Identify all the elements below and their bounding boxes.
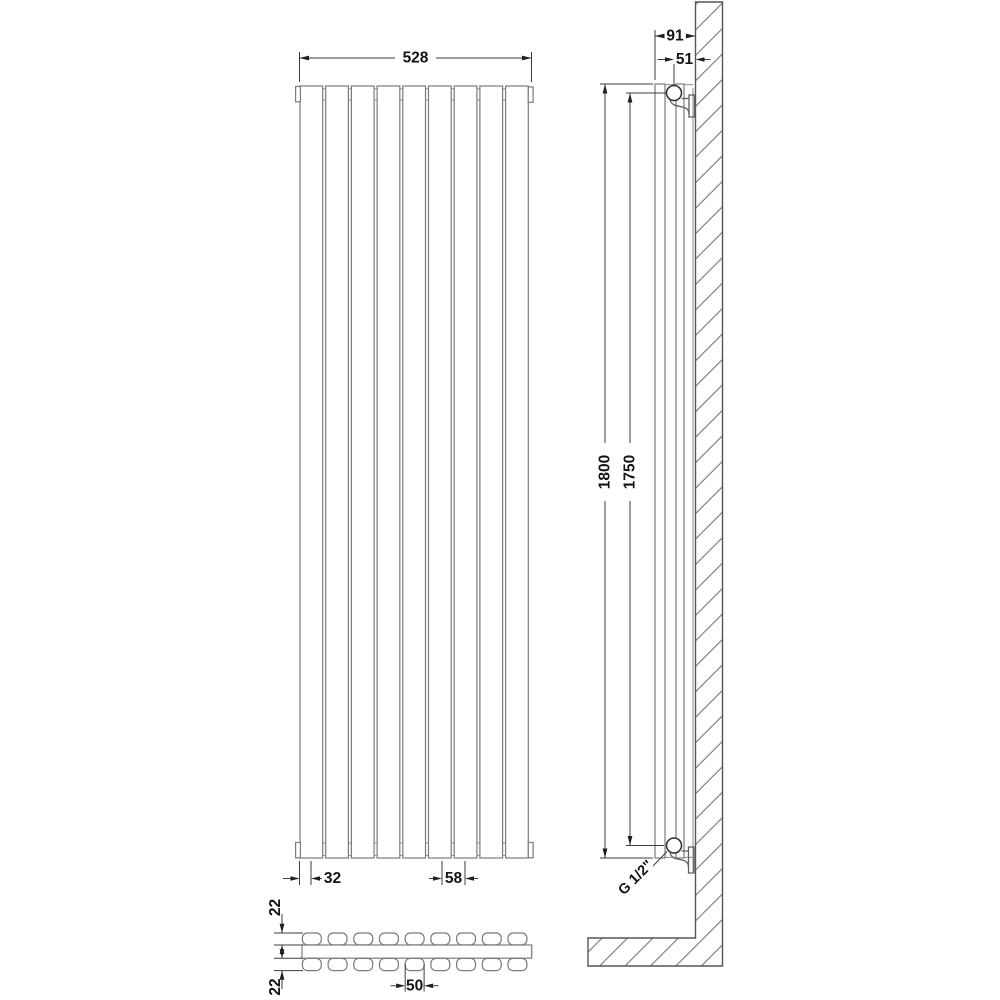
arrowhead bbox=[433, 876, 442, 881]
arrowhead bbox=[628, 836, 633, 846]
panel-section-front bbox=[405, 933, 424, 945]
front-panel-array bbox=[296, 86, 533, 858]
radiator-panel bbox=[300, 86, 323, 858]
overall-depth-label: 91 bbox=[666, 28, 684, 45]
panel-depth-front-label: 22 bbox=[267, 899, 284, 916]
end-tab bbox=[528, 87, 533, 102]
end-tab bbox=[528, 843, 533, 858]
pipe-connection-bottom bbox=[667, 838, 682, 853]
bracket-plate bbox=[689, 95, 695, 117]
panel-section-rear bbox=[302, 958, 321, 970]
radiator-technical-drawing: 528 32 58 bbox=[0, 0, 1000, 1000]
panel-section-rear bbox=[457, 958, 476, 970]
extension-lines bbox=[274, 933, 303, 971]
dimension-panel-width-front: 58 bbox=[429, 861, 478, 887]
edge-offset-label: 32 bbox=[324, 870, 341, 887]
panel-section-rear bbox=[380, 958, 399, 970]
arrowhead bbox=[603, 84, 608, 94]
arrowhead bbox=[665, 57, 674, 62]
arrowhead bbox=[628, 93, 633, 103]
panel-depth-rear-label: 22 bbox=[267, 978, 284, 995]
arrowhead bbox=[522, 56, 532, 61]
panel-section-front bbox=[482, 933, 501, 945]
radiator-panel bbox=[480, 86, 503, 858]
panel-section-front bbox=[457, 933, 476, 945]
arrowhead bbox=[424, 984, 433, 989]
connection-thread-label: G 1/2" bbox=[615, 857, 656, 898]
radiator-panel bbox=[377, 86, 400, 858]
panel-section-rear bbox=[405, 958, 424, 970]
dimension-edge-offset: 32 bbox=[283, 861, 341, 887]
radiator-panel bbox=[403, 86, 426, 858]
panel-section-front bbox=[380, 933, 399, 945]
overall-width-label: 528 bbox=[403, 50, 429, 67]
overall-height-label: 1800 bbox=[597, 455, 614, 489]
dimension-overall-width: 528 bbox=[300, 50, 532, 83]
plan-header-bar bbox=[302, 945, 532, 958]
arrowhead bbox=[300, 56, 310, 61]
panel-width-label: 58 bbox=[445, 870, 463, 887]
extension-lines bbox=[300, 861, 312, 885]
front-panel-section bbox=[655, 84, 665, 858]
plan-panel-width-label: 50 bbox=[406, 977, 423, 994]
arrowhead bbox=[465, 876, 474, 881]
panel-section-rear bbox=[482, 958, 501, 970]
drawing-canvas: 528 32 58 bbox=[0, 0, 1000, 1000]
panel-section-rear bbox=[431, 958, 450, 970]
arrowhead bbox=[603, 849, 608, 859]
pipe-centres-label: 1750 bbox=[622, 455, 639, 489]
arrowhead bbox=[655, 34, 665, 39]
radiator-panel bbox=[326, 86, 349, 858]
radiator-panel bbox=[506, 86, 529, 858]
plan-view: 22 22 50 bbox=[267, 899, 532, 996]
front-view: 528 32 58 bbox=[283, 50, 533, 888]
panel-section-rear bbox=[328, 958, 347, 970]
end-tab bbox=[296, 843, 301, 858]
arrowhead bbox=[396, 984, 405, 989]
radiator-panel bbox=[351, 86, 374, 858]
dimension-panel-depths: 22 22 bbox=[267, 899, 303, 996]
panel-section-front bbox=[328, 933, 347, 945]
arrowhead bbox=[311, 876, 320, 881]
arrowhead bbox=[686, 34, 696, 39]
pipe-to-wall-label: 51 bbox=[676, 51, 694, 68]
panel-section-front bbox=[354, 933, 373, 945]
end-tab bbox=[296, 87, 301, 102]
arrowhead bbox=[280, 924, 285, 933]
pipe-connection-top bbox=[667, 86, 682, 101]
radiator-panel bbox=[429, 86, 452, 858]
rear-panel-section bbox=[676, 84, 684, 858]
side-view: 91 51 1800 1750 bbox=[588, 2, 723, 966]
panel-section-front bbox=[508, 933, 527, 945]
panel-section-rear bbox=[508, 958, 527, 970]
panel-section-front bbox=[302, 933, 321, 945]
side-radiator-profile bbox=[655, 84, 693, 872]
panel-section-front bbox=[431, 933, 450, 945]
arrowhead bbox=[291, 876, 300, 881]
radiator-panel bbox=[454, 86, 477, 858]
panel-section-rear bbox=[354, 958, 373, 970]
